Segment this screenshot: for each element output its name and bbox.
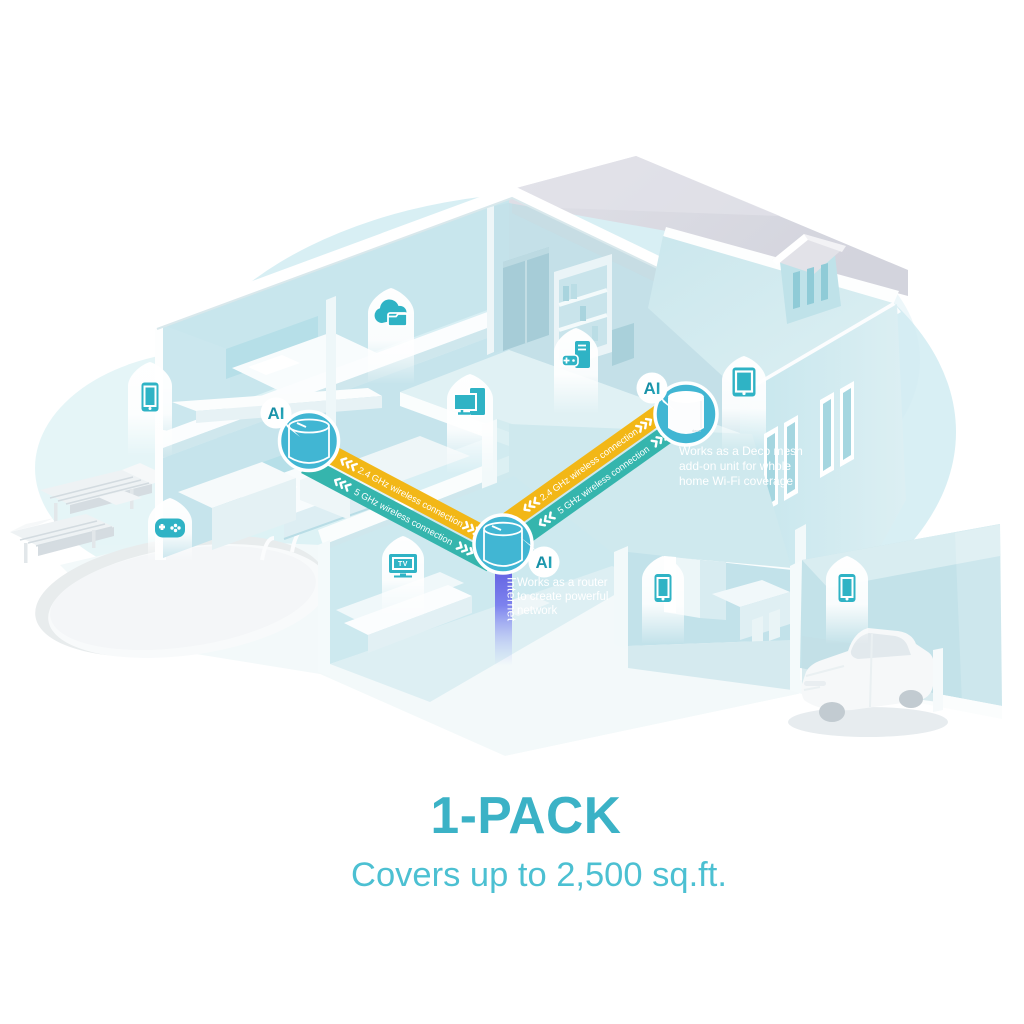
svg-text:Works as a Deco mesh: Works as a Deco mesh — [679, 444, 803, 458]
svg-text:AI: AI — [268, 404, 285, 423]
svg-text:network: network — [517, 605, 558, 617]
svg-text:deco: deco — [692, 428, 701, 433]
svg-text:1-PACK: 1-PACK — [431, 786, 622, 844]
svg-text:AI: AI — [536, 553, 553, 572]
svg-text:add-on unit for whole: add-on unit for whole — [679, 459, 791, 473]
svg-text:to create powerful: to create powerful — [517, 591, 608, 603]
svg-text:TV: TV — [398, 561, 408, 568]
svg-text:Works as a router: Works as a router — [517, 577, 608, 589]
svg-text:Covers up to 2,500 sq.ft.: Covers up to 2,500 sq.ft. — [351, 856, 727, 894]
svg-text:home Wi-Fi coverage: home Wi-Fi coverage — [679, 474, 793, 488]
svg-text:AI: AI — [644, 379, 661, 398]
